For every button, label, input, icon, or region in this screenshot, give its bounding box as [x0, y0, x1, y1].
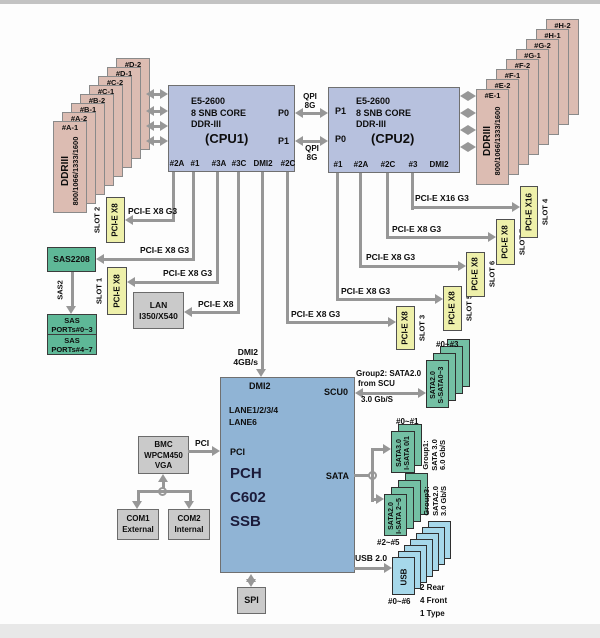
link-label-sas: PCI-E X8 G3 — [140, 245, 189, 255]
link-cpu1-dmi — [261, 172, 264, 370]
bottom-border-band — [0, 624, 600, 638]
sata-card-front: SATA2.0S-SATA0~3 — [426, 360, 449, 408]
sata-card-label: SATA3.0I-SATA 0/1 — [396, 436, 412, 470]
cpu2-port-p1: P1 — [335, 106, 346, 116]
slot1-type: PCI-E X8 — [112, 274, 121, 307]
cpu2-specs: E5-26008 SNB COREDDR-III — [356, 96, 411, 131]
cpu2-port: #2C — [381, 160, 396, 169]
link-label-slot7: PCI-E X8 G3 — [392, 224, 441, 234]
usb-range-label: #0~#6 — [388, 597, 410, 606]
arrowhead — [384, 563, 392, 573]
arrowhead — [418, 388, 426, 398]
sata-card-label: SATA2.0S-SATA0~3 — [430, 367, 446, 404]
cpu2-port: #1 — [334, 160, 343, 169]
block-diagram: #D-2 #D-1 #C-2 #C-1 #B-2 #B-1 #A-2 #A-1 … — [0, 0, 600, 638]
cpu1-specs: E5-26008 SNB COREDDR-III — [191, 96, 246, 131]
slot7-type: PCI-E X8 — [500, 225, 509, 258]
dimm-front-label: DDRIII 800/1066/1333/1600 — [60, 137, 80, 206]
top-border-band — [0, 0, 600, 4]
isata25-range-label: #2~#5 — [377, 538, 399, 547]
slot4-name: SLOT 4 — [542, 199, 551, 225]
link-cpu2-slot4-h — [411, 206, 513, 209]
arrowhead — [458, 261, 466, 271]
pch-lanes-label: LANE1/2/3/4LANE6 — [229, 404, 278, 428]
arrowhead — [127, 277, 135, 287]
link-label-sas2: SAS2 — [57, 280, 66, 300]
slot3-name: SLOT 3 — [419, 315, 428, 341]
arrowhead — [125, 215, 133, 225]
slot6-type: PCI-E X8 — [470, 257, 479, 290]
link-label-slot3: PCI-E X8 G3 — [291, 309, 340, 319]
cpu1-port-p0: P0 — [278, 108, 289, 118]
sata-card-front: SATA3.0I-SATA 0/1 — [391, 431, 415, 473]
link-cpu1-lan — [237, 172, 240, 314]
link-label-usb: USB 2.0 — [355, 553, 387, 563]
com1-box: COM1External — [117, 509, 159, 540]
arrowhead — [212, 446, 220, 456]
usb-notes: 2 Rear4 Front1 Type — [420, 581, 447, 620]
cpu1-port: #2C — [281, 159, 296, 168]
link-cpu2-slot7 — [386, 173, 389, 239]
group2-text-2: from SCU — [358, 379, 395, 388]
sata30-range-label: #0~#1 — [396, 417, 418, 426]
link-cpu1-slot3-h — [286, 321, 389, 324]
link-label-slot6: PCI-E X8 G3 — [366, 252, 415, 262]
cpu2-title: (CPU2) — [371, 131, 414, 146]
link-com-tbar — [137, 490, 191, 493]
arrowhead — [512, 202, 520, 212]
cpu2-port-p0: P0 — [335, 134, 346, 144]
group3-annotation: Group3:SATA2.03.0 Gb/S — [423, 486, 449, 516]
pch-pci-label: PCI — [230, 447, 245, 457]
bmc-box: BMCWPCM450VGA — [138, 436, 189, 474]
link-cpu1-slot1 — [216, 172, 219, 284]
link-cpu2-slot5 — [336, 173, 339, 301]
ssata-range-label: #0~#3 — [436, 340, 458, 349]
cpu1-port: #1 — [191, 159, 200, 168]
arrowhead — [246, 579, 256, 587]
link-label-pci: PCI — [195, 438, 209, 448]
arrowhead — [256, 369, 266, 377]
link-cpu1-slot1-h — [133, 281, 218, 284]
arrowhead — [488, 232, 496, 242]
cpu1-port: #2A — [170, 159, 185, 168]
link-pch-usb — [354, 567, 385, 570]
arrowhead — [96, 254, 104, 264]
qpi-bottom-label: QPI8G — [299, 144, 325, 162]
usb-card-front: USB — [392, 557, 415, 595]
pch-box: DMI2 SCU0 LANE1/2/3/4LANE6 PCI PCHC602SS… — [220, 377, 355, 573]
group1-annotation: Group1:SATA 3.06.0 Gb/S — [422, 439, 448, 471]
spi-box: SPI — [237, 587, 266, 614]
slot3-type: PCI-E X8 — [400, 311, 409, 344]
link-label-dmi: DMI24GB/s — [224, 347, 258, 367]
link-cpu2-slot5-h — [336, 298, 436, 301]
link-cpu1-sas — [192, 172, 195, 261]
cpu1-box: E5-26008 SNB COREDDR-III (CPU1) P0 P1 #2… — [168, 85, 295, 172]
cpu2-port: #2A — [354, 160, 369, 169]
slot4-type: PCI-E X16 — [524, 193, 533, 231]
cpu2-box: E5-26008 SNB COREDDR-III (CPU2) P1 P0 #1… — [328, 87, 460, 173]
link-label-slot2: PCI-E X8 G3 — [128, 206, 177, 216]
link-cpu2-slot4 — [411, 173, 414, 210]
qpi-top-label: QPI8G — [297, 92, 323, 110]
dimm-card-front: #A-1 DDRIII 800/1066/1333/1600 — [53, 121, 87, 213]
com2-box: COM2Internal — [168, 509, 210, 540]
link-label-slot1: PCI-E X8 G3 — [163, 268, 212, 278]
dimm-card-front: #E-1 DDRIII 800/1066/1333/1600 — [476, 89, 509, 185]
slot1-name: SLOT 1 — [96, 278, 105, 304]
group2-text-1: Group2: SATA2.0 — [356, 369, 421, 378]
arrowhead — [388, 317, 396, 327]
pch-sata-label: SATA — [326, 471, 349, 481]
link-cpu1-lan-h — [190, 311, 240, 314]
slot5-name: SLOT 5 — [466, 295, 475, 321]
link-bmc-pch — [188, 450, 214, 453]
arrowhead — [435, 294, 443, 304]
sata-bracket-v — [371, 448, 374, 502]
cpu1-port: #3C — [232, 159, 247, 168]
slot5-type: PCI-E X8 — [447, 291, 456, 324]
cpu1-title: (CPU1) — [205, 131, 248, 146]
arrowhead — [66, 306, 76, 314]
link-label-slot5: PCI-E X8 G3 — [341, 286, 390, 296]
group2-text-3: 3.0 Gb/S — [361, 395, 393, 404]
link-cpu2-slot6-h — [359, 265, 459, 268]
pch-scu-label: SCU0 — [324, 387, 348, 397]
sas-ports-4-7-box: SASPORTs#4~7 — [47, 334, 97, 355]
cpu1-port: #3A — [212, 159, 227, 168]
link-cpu2-slot7-h — [386, 236, 489, 239]
cpu2-port: #3 — [409, 160, 418, 169]
link-sas2 — [71, 272, 74, 308]
sas-ports-0-3-box: SASPORTs#0~3 — [47, 314, 97, 335]
cpu1-port-p1: P1 — [278, 136, 289, 146]
arrowhead — [383, 444, 391, 454]
link-cpu1-sas-h — [102, 258, 194, 261]
slot2-name: SLOT 2 — [94, 207, 103, 233]
sata-card-label: SATA2.0I-SATA 2~5 — [388, 498, 404, 534]
pch-dmi-label: DMI2 — [249, 381, 271, 391]
dimm-front-label: DDRIII 800/1066/1333/1600 — [482, 107, 502, 176]
link-cpu1-slot2-h — [131, 219, 175, 222]
slot2-type: PCI-E X8 — [110, 203, 119, 236]
cpu2-port: DMI2 — [429, 160, 448, 169]
arrowhead — [132, 501, 142, 509]
lan-box: LANI350/X540 — [133, 292, 184, 329]
link-cpu1-slot3 — [286, 172, 289, 324]
link-cpu2-slot6 — [359, 173, 362, 268]
sata-card-front: SATA2.0I-SATA 2~5 — [384, 494, 407, 536]
sas2208-box: SAS2208 — [47, 247, 96, 272]
cpu1-port: DMI2 — [253, 159, 272, 168]
link-label-lan: PCI-E X8 — [198, 299, 233, 309]
arrowhead — [184, 501, 194, 509]
pch-title: PCHC602SSB — [230, 462, 266, 534]
usb-card-label: USB — [399, 569, 408, 586]
arrowhead — [376, 494, 384, 504]
link-label-slot4: PCI-E X16 G3 — [415, 193, 469, 203]
arrowhead — [184, 307, 192, 317]
